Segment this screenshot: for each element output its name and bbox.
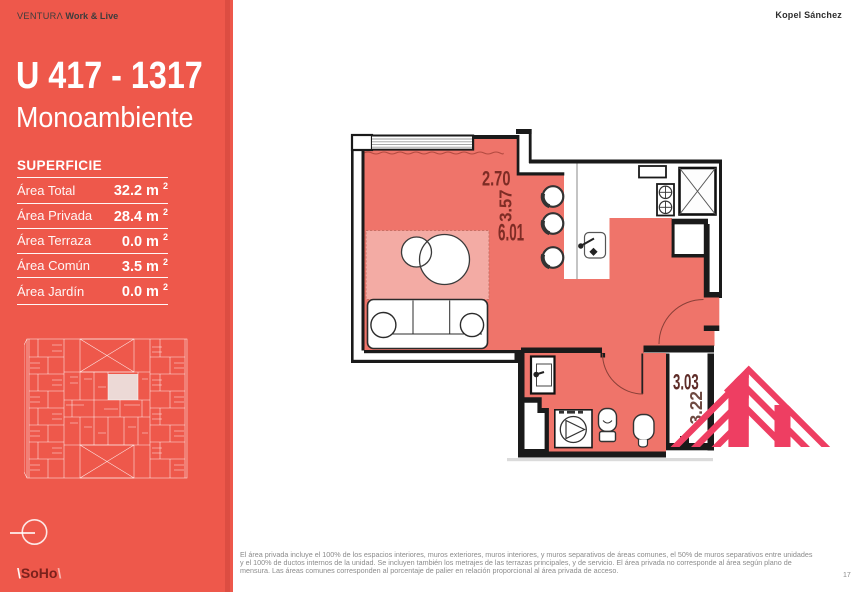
svg-text:3.57: 3.57: [496, 189, 515, 221]
svg-text:2.70: 2.70: [482, 165, 510, 190]
svg-text:6.01: 6.01: [498, 220, 524, 247]
svg-text:3.03: 3.03: [673, 370, 699, 394]
